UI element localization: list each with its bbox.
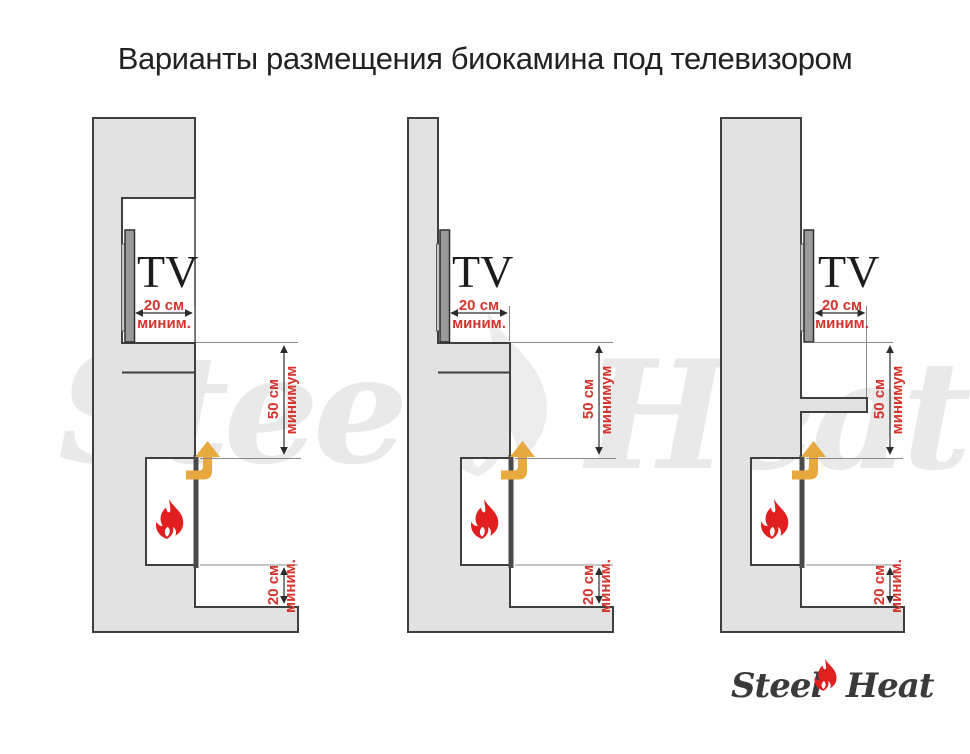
fireplace-to-base-qualifier: миним.: [597, 559, 614, 613]
flame-icon: [761, 499, 788, 539]
tv-offset-qualifier: миним.: [452, 315, 506, 332]
diagram-artwork: Steel Heat TV 20 см миним. 50 см мин: [0, 0, 970, 754]
tv-to-fireplace-value: 50 см: [871, 379, 888, 419]
tv-label: TV: [137, 246, 198, 297]
fireplace-to-base-value: 20 см: [265, 565, 282, 605]
tv-label: TV: [452, 246, 513, 297]
fireplace-to-base-qualifier: миним.: [888, 559, 905, 613]
tv-offset-value: 20 см: [822, 297, 862, 314]
tv-offset-value: 20 см: [459, 297, 499, 314]
tv-to-fireplace-qualifier: минимум: [889, 366, 906, 435]
fireplace-to-base-value: 20 см: [580, 565, 597, 605]
tv-offset-value: 20 см: [144, 297, 184, 314]
tv-to-fireplace-value: 50 см: [580, 379, 597, 419]
infographic-canvas: Варианты размещения биокамина под телеви…: [0, 0, 970, 754]
fireplace-to-base-value: 20 см: [871, 565, 888, 605]
fireplace-to-base-qualifier: миним.: [282, 559, 299, 613]
logo-steel-text: Steel: [731, 666, 824, 706]
tv-offset-qualifier: миним.: [137, 315, 191, 332]
flame-icon: [156, 499, 183, 539]
flame-icon: [471, 499, 498, 539]
tv-screen: [125, 230, 135, 342]
tv-to-fireplace-value: 50 см: [265, 379, 282, 419]
tv-offset-qualifier: миним.: [815, 315, 869, 332]
tv-to-fireplace-qualifier: минимум: [598, 366, 615, 435]
tv-screen: [804, 230, 814, 342]
tv-label: TV: [818, 246, 879, 297]
logo-heat-text: Heat: [845, 666, 935, 706]
tv-to-fireplace-qualifier: минимум: [283, 366, 300, 435]
brand-logo: Steel Heat: [731, 659, 935, 706]
tv-screen: [440, 230, 450, 342]
